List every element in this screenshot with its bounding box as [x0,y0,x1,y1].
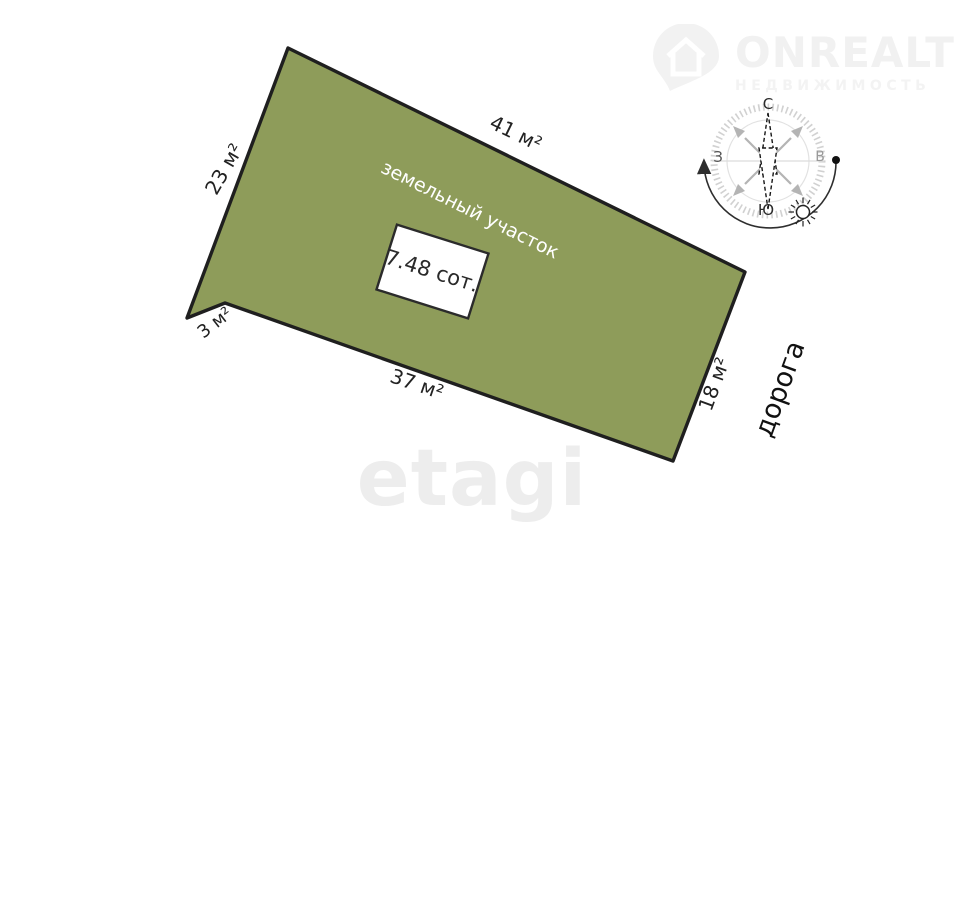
agency-watermark: etagi [357,434,587,524]
compass-rose [712,107,824,215]
compass-south-label: Ю [758,201,774,219]
compass-east-label: В [815,149,825,165]
land-plot-diagram: ONREALT НЕДВИЖИМОСТЬ [0,0,960,910]
compass-west-label: З [713,148,723,166]
arc-end-dot [832,156,840,164]
compass-north-label: С [763,95,773,113]
compass-needle [759,113,777,209]
sun-icon [789,198,818,227]
